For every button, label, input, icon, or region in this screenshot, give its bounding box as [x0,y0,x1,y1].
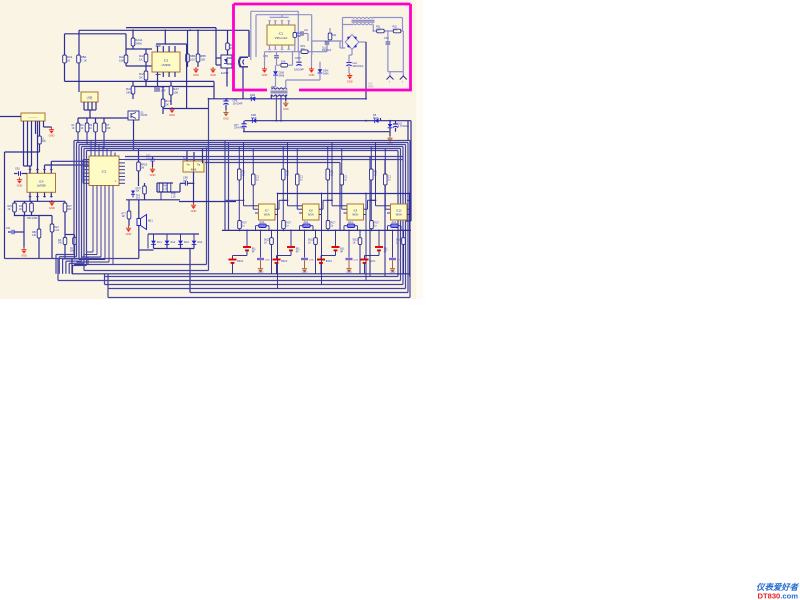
svg-text:GND: GND [302,270,308,274]
svg-text:1K: 1K [81,127,84,130]
svg-text:(IC7): (IC7) [136,188,141,190]
svg-text:Cy1: Cy1 [322,48,327,50]
svg-text:GND: GND [49,134,55,138]
svg-text:C?5: C?5 [397,259,402,262]
svg-text:WGN: WGN [352,213,358,216]
svg-text:GND: GND [21,254,27,258]
svg-text:9P: 9P [296,250,299,253]
svg-text:9P: 9P [384,250,387,253]
svg-text:IC10: IC10 [396,210,402,213]
svg-text:CP?: CP? [234,125,239,127]
svg-text:C?5: C?5 [354,259,359,262]
svg-text:RA: RA [58,239,62,242]
svg-text:- - - -: - - - - [87,98,92,101]
svg-text:LM393: LM393 [162,63,171,67]
svg-text:0uF: 0uF [183,179,188,182]
svg-text:B3C4: B3C4 [237,260,244,263]
svg-text:10K: 10K [119,58,124,62]
svg-text:GND: GND [193,73,199,77]
svg-text:5919: 5919 [373,117,379,120]
svg-text:GND: GND [309,73,315,77]
svg-text:C?5: C?5 [265,259,270,262]
svg-text:WGN: WGN [396,213,402,216]
svg-text:1uF: 1uF [304,29,309,32]
svg-text:DG2: DG2 [171,242,176,244]
svg-text:1M: 1M [141,166,144,169]
svg-text:~ ~ ~ ~ ~: ~ ~ ~ ~ ~ [28,118,38,120]
svg-text:GND: GND [262,73,268,77]
svg-text:10V104P: 10V104P [233,102,243,105]
svg-text:10V104P: 10V104P [294,69,304,72]
svg-text:1K: 1K [264,241,267,244]
svg-text:DT830.com: DT830.com [757,592,798,600]
svg-text:1K: 1K [89,127,92,130]
svg-text:470: 470 [301,48,306,51]
svg-text:CP1: CP1 [384,37,389,40]
svg-text:1K: 1K [396,241,399,244]
svg-text:450V1uF: 450V1uF [322,50,332,52]
svg-text:9P: 9P [252,250,255,253]
svg-text:TL4: TL4 [136,195,141,197]
svg-text:5408: 5408 [251,117,257,120]
svg-text:1.3K: 1.3K [376,28,381,31]
svg-text:C?5: C?5 [309,259,314,262]
svg-text:GND: GND [49,206,55,210]
svg-text:AA1: AA1 [392,221,397,224]
svg-text:R23 240K: R23 240K [27,217,38,220]
svg-text:GND: GND [17,184,23,188]
svg-text:AA1: AA1 [260,221,265,224]
svg-text:5406: 5406 [323,72,329,75]
svg-text:DG4: DG4 [198,242,203,244]
svg-text:1K: 1K [139,57,143,61]
svg-text:CB1: CB1 [15,168,20,171]
svg-text:1K: 1K [165,102,169,106]
svg-text:WGN: WGN [264,213,270,216]
svg-text:9P: 9P [340,250,343,253]
svg-text:AA1: AA1 [304,221,309,224]
svg-text:R11: R11 [332,34,337,37]
svg-text:Yin: Yin [186,164,190,167]
svg-text:EL817: EL817 [221,71,229,75]
svg-text:100: 100 [200,57,205,61]
svg-text:400V10uF: 400V10uF [352,65,364,68]
svg-text:VIPer12A: VIPer12A [275,36,288,40]
svg-text:1K: 1K [308,241,311,244]
svg-text:10k: 10k [281,60,286,64]
svg-text:1K: 1K [8,208,11,211]
svg-text:BE1: BE1 [148,220,153,223]
svg-text:B3C4: B3C4 [281,260,288,263]
svg-text:GND: GND [347,80,353,84]
svg-text:IC1: IC1 [279,32,284,36]
svg-text:CP4: CP4 [295,56,301,60]
svg-text:C31: C31 [6,228,11,230]
svg-text:6008: 6008 [368,86,374,89]
svg-text:240K: 240K [135,41,142,45]
svg-text:IC2: IC2 [102,169,107,173]
svg-text:1.3K: 1.3K [393,28,398,31]
svg-text:C61: C61 [398,124,403,126]
svg-text:IC7: IC7 [265,210,270,213]
svg-text:仪表爱好者: 仪表爱好者 [756,582,799,592]
svg-text:GND: GND [283,107,289,111]
svg-text:AA1: AA1 [348,221,353,224]
svg-text:GND: GND [150,173,156,177]
svg-text:RT?: RT? [122,214,127,216]
svg-text:2K: 2K [19,208,22,211]
svg-text:IC8: IC8 [309,210,314,213]
svg-text:GND: GND [223,117,229,121]
svg-text:100: 100 [173,90,178,94]
svg-text:1K: 1K [353,241,356,244]
svg-text:4066: 4066 [191,169,197,172]
svg-text:5408: 5408 [279,74,285,77]
svg-text:B3C4: B3C4 [326,260,333,263]
svg-text:GND: GND [390,270,396,274]
svg-text:WGN: WGN [308,213,314,216]
svg-text:Tia: Tia [197,164,201,167]
svg-text:1.1K: 1.1K [171,195,176,198]
svg-text:7.1K: 7.1K [81,58,87,62]
svg-text:96K: 96K [67,208,72,211]
svg-text:B0O6: B0O6 [250,97,257,100]
svg-text:IC9: IC9 [353,210,358,213]
svg-text:10V470uF: 10V470uF [234,128,245,130]
svg-text:1K: 1K [72,127,75,130]
svg-text:1.1K: 1.1K [54,229,59,232]
svg-text:GND: GND [126,232,132,236]
svg-text:10K: 10K [136,191,141,193]
svg-text:CP2: CP2 [263,54,269,58]
svg-text:GND: GND [191,209,197,213]
svg-text:LM358: LM358 [37,184,46,188]
svg-text:1K: 1K [70,248,73,250]
svg-text:1K: 1K [67,58,71,62]
svg-text:1M: 1M [122,216,125,218]
svg-text:DG1: DG1 [157,242,162,244]
svg-text:GND: GND [210,73,216,77]
svg-text:GND: GND [258,270,264,274]
svg-text:C1815: C1815 [141,115,148,117]
svg-text:14K: 14K [32,234,37,237]
svg-text:240K: 240K [126,90,133,94]
svg-text:B3C4: B3C4 [369,260,376,263]
svg-text:2K: 2K [139,75,143,79]
svg-text:DG3: DG3 [184,242,189,244]
svg-text:10K: 10K [106,127,111,130]
svg-text:GND: GND [346,270,352,274]
svg-text:100: 100 [190,57,195,61]
svg-text:GND: GND [169,113,175,117]
